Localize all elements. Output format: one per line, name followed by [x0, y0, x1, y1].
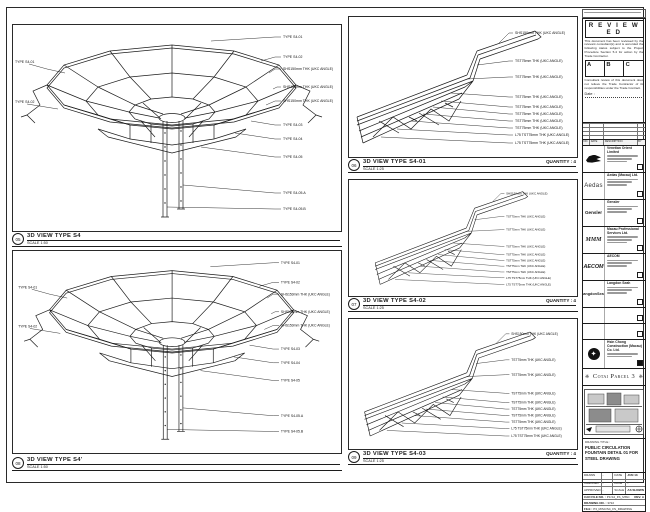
consultant-row-aedas: Aedas Aedas (Macau) Ltd. — [582, 173, 646, 200]
callout-label: TST75mm THK (UKC ANGLE) — [511, 391, 555, 395]
callout-label: SHS150mm THK (UKC ANGLE) — [281, 324, 330, 328]
reviewed-stamp: R E V I E W E D This document has been r… — [582, 18, 646, 123]
aecom-logo: AECOM — [583, 264, 603, 270]
detail-marker-number: 06 — [351, 163, 356, 168]
callout-label: SHS150mm THK (UKC ANGLE) — [281, 292, 330, 296]
structure-wireframe — [375, 192, 527, 285]
consultant-row-gensler: Gensler Gensler — [582, 200, 646, 227]
truss-segment-drawing: SHS150mm THK (UKC ANGLE) TST75mm THK (UK… — [349, 319, 577, 449]
callout-label: TST75mm THK (UKC ANGLE) — [515, 95, 563, 99]
view-title-s4-prime: 08 3D VIEW TYPE S4' SCALE 1:50 — [12, 456, 342, 471]
drawing-title-section: DRAWING TITLE : PUBLIC CIRCULATION FOUNT… — [582, 439, 646, 473]
callout-labels: TYPE S4-01 TYPE S4-02 SHS150mm THK (UKC … — [18, 261, 330, 434]
callout-label: TYPE S4-03 — [283, 123, 303, 127]
detail-marker-number: 07 — [351, 302, 356, 307]
callout-label: TYPE S4-02 — [281, 281, 300, 285]
callout-label: SHS150mm THK (UKC ANGLE) — [515, 31, 565, 35]
consultant-checkbox — [637, 245, 643, 251]
detail-marker: 08 — [12, 457, 24, 469]
signature-table: DRAWN-DATEJUN 13 CHECKED-DATE- APPROVED-… — [582, 473, 646, 495]
umbrella-structure-drawing: TYPE S4-01 TYPE S4-02 SHS150mm THK (UKC … — [13, 251, 341, 453]
title-block: R E V I E W E D This document has been r… — [582, 9, 646, 481]
callout-label: TST75mm THK (UKC ANGLE) — [506, 258, 545, 262]
view-scale-text: SCALE 1:25 — [363, 167, 576, 171]
drawing-title-label: DRAWING TITLE : — [585, 440, 643, 444]
callout-label: TST75mm THK (UKC ANGLE) — [506, 264, 545, 268]
structure-wireframe — [365, 332, 536, 436]
consultant-name: Macau Professional Services Ltd. — [607, 228, 643, 235]
key-plan-map — [584, 387, 644, 437]
consultant-checkbox — [637, 315, 643, 321]
detail-marker: 09 — [348, 451, 360, 463]
callout-labels: TYPE S4-01 TYPE S4-02 SHS150mm THK (UKC … — [15, 35, 333, 211]
quantity-note: QUANTITY : 4 — [546, 298, 576, 304]
callout-label: TYPE S4-05.A — [283, 191, 306, 195]
viewport-3d-view-type-s4-02: SHS150mm THK (UKC ANGLE) TST75mm THK (UK… — [348, 179, 578, 297]
detail-marker-number: 08 — [15, 461, 20, 466]
callout-labels: SHS150mm THK (UKC ANGLE) TST75mm THK (UK… — [511, 332, 561, 438]
contractor-row: ✦ Hsin Chong Construction (Macau) Co. Lt… — [582, 340, 646, 369]
callout-label: TST75mm THK (UKC ANGLE) — [515, 112, 563, 116]
view-title-text: 3D VIEW TYPE S4-03 — [363, 451, 426, 457]
view-title-text: 3D VIEW TYPE S4-02 — [363, 298, 426, 304]
view-title-text: 3D VIEW TYPE S4-01 — [363, 159, 426, 165]
consultant-checkbox — [637, 191, 643, 197]
detail-marker-number: 05 — [15, 237, 20, 242]
callout-label: TYPE S4-05 — [283, 155, 303, 159]
detail-marker-number: 09 — [351, 455, 356, 460]
viewport-3d-view-type-s4: TYPE S4-01 TYPE S4-02 SHS150mm THK (UKC … — [12, 24, 342, 232]
key-plan — [582, 386, 646, 439]
contractor-name: Hsin Chong Construction (Macau) Co. Ltd. — [607, 341, 643, 352]
consultant-row-langdon-seah: LangdonSeah Langdon Seah — [582, 281, 646, 308]
callout-label: TST75mm THK (UKC ANGLE) — [506, 244, 545, 248]
callout-label: TYPE S4-05.B — [283, 207, 306, 211]
consultant-row-mps: MMM Macau Professional Services Ltd. — [582, 227, 646, 254]
callout-label: TYPE S4-04 — [281, 361, 300, 365]
callout-label: TST75mm THK (UKC ANGLE) — [506, 214, 545, 218]
callout-label: TST75mm THK (UKC ANGLE) — [511, 373, 555, 377]
callout-label: TYPE S4-01 — [281, 261, 300, 265]
quantity-note: QUANTITY : 4 — [546, 451, 576, 457]
callout-label: TYPE S4-03 — [281, 347, 300, 351]
drawing-sheet-page: { "views": { "left_top": {"marker": "05"… — [0, 0, 650, 488]
callout-label: TST75mm THK (UKC ANGLE) — [511, 414, 555, 418]
view-title-s4-01: 06 3D VIEW TYPE S4-01QUANTITY : 4 SCALE … — [348, 158, 578, 173]
viewport-3d-view-type-s4-01: SHS150mm THK (UKC ANGLE) TST75mm THK (UK… — [348, 16, 578, 158]
callout-label: L75 TST75mm THK (UKC ANGLE) — [506, 282, 551, 286]
callout-label: TYPE S4-02 — [283, 55, 303, 59]
contractor-emblem: ✦ — [588, 348, 600, 360]
file-path-row: FILE : P3_MISC/S4_FS_DRAWING — [583, 505, 645, 511]
consultant-row-empty — [582, 308, 646, 324]
callout-label: TST75mm THK (UKC ANGLE) — [515, 59, 563, 63]
callout-label: TST75mm THK (UKC ANGLE) — [506, 253, 545, 257]
consultant-name: Gensler — [607, 201, 643, 205]
callout-label: SHS150mm THK (UKC ANGLE) — [281, 310, 330, 314]
detail-marker: 07 — [348, 298, 360, 310]
callout-label: TYPE S4-01 — [283, 35, 303, 39]
viewport-3d-view-type-s4-03: SHS150mm THK (UKC ANGLE) TST75mm THK (UK… — [348, 318, 578, 450]
callout-label: L75 TST75mm THK (UKC ANGLE) — [511, 427, 561, 431]
banner-ornament-right-icon: ❈ — [639, 374, 643, 380]
status-boxes: A B C — [585, 60, 644, 77]
gensler-logo: Gensler — [585, 210, 602, 215]
callout-label: TYPE S4-04 — [283, 137, 303, 141]
status-box-c: C — [624, 61, 642, 76]
callout-labels: SHS150mm THK (UKC ANGLE) TST75mm THK (UK… — [506, 191, 551, 286]
callout-label: SHS150mm THK (UKC ANGLE) — [283, 67, 333, 71]
revision-table-header: NO. DATE DESCRIPTION BY — [583, 139, 645, 145]
callout-label: TYPE S4-01 — [15, 60, 35, 64]
callout-label: L75 TST75mm THK (UKC ANGLE) — [511, 434, 561, 438]
detail-marker: 06 — [348, 159, 360, 171]
signature-row-approved: APPROVED-SCALEAS SHOWN — [583, 486, 645, 493]
fine-print-strip — [582, 9, 646, 18]
structure-wireframe — [357, 31, 541, 143]
callout-labels: SHS150mm THK (UKC ANGLE) TST75mm THK (UK… — [515, 31, 569, 145]
umbrella-structure-drawing: TYPE S4-01 TYPE S4-02 SHS150mm THK (UKC … — [13, 25, 341, 231]
consultant-checkbox — [637, 299, 643, 305]
quantity-note: QUANTITY : 4 — [546, 159, 576, 165]
signature-row-checked: CHECKED-DATE- — [583, 479, 645, 486]
view-title-s4-02: 07 3D VIEW TYPE S4-02QUANTITY : 4 SCALE … — [348, 297, 578, 312]
view-title-s4-03: 09 3D VIEW TYPE S4-03QUANTITY : 4 SCALE … — [348, 450, 578, 465]
revision-table: NO. DATE DESCRIPTION BY — [582, 123, 646, 146]
project-name: Cotai Parcel 3 — [593, 373, 635, 380]
venetian-logo — [583, 146, 604, 172]
consultant-checkbox — [637, 218, 643, 224]
viewport-3d-view-type-s4-prime: TYPE S4-01 TYPE S4-02 SHS150mm THK (UKC … — [12, 250, 342, 454]
callout-label: TST75mm THK (UKC ANGLE) — [515, 126, 563, 130]
contractor-checkbox — [637, 360, 643, 366]
view-scale-text: SCALE 1:50 — [27, 465, 340, 469]
callout-label: L75 TST75mm THK (UKC ANGLE) — [515, 141, 569, 145]
consultant-name: AECOM — [607, 255, 643, 259]
status-box-a: A — [586, 61, 605, 76]
view-scale-text: SCALE 1:50 — [27, 241, 340, 245]
reviewed-stamp-note: Consultant review of this document does … — [585, 79, 644, 91]
callout-label: TYPE S4-02 — [18, 324, 37, 328]
consultant-row-empty — [582, 324, 646, 340]
langdon-seah-logo: LangdonSeah — [583, 292, 604, 296]
callout-label: L75 TST75mm THK (UKC ANGLE) — [506, 276, 551, 280]
drawing-title-text: PUBLIC CIRCULATION FOUNTAIN DETAIL 01 FO… — [585, 445, 643, 461]
callout-label: SHS150mm THK (UKC ANGLE) — [283, 85, 333, 89]
aedas-logo: Aedas — [584, 183, 603, 189]
view-scale-text: SCALE 1:25 — [363, 459, 576, 463]
consultant-name: Langdon Seah — [607, 282, 643, 286]
callout-label: TYPE S4-05 — [281, 379, 300, 383]
truss-segment-drawing: SHS150mm THK (UKC ANGLE) TST75mm THK (UK… — [349, 17, 577, 157]
callout-label: TST75mm THK (UKC ANGLE) — [506, 228, 545, 232]
reviewed-stamp-body: This document has been reviewed by the r… — [585, 40, 644, 59]
callout-label: SHS150mm THK (UKC ANGLE) — [506, 191, 547, 195]
consultant-row-venetian: Venetian Orient Limited — [582, 146, 646, 173]
detail-marker: 05 — [12, 233, 24, 245]
structure-wireframe — [21, 45, 322, 217]
callout-label: TYPE S4-05.B — [281, 430, 304, 434]
callout-label: TST75mm THK (UKC ANGLE) — [515, 75, 563, 79]
reviewed-date-line: Date : — [585, 92, 644, 98]
structure-wireframe — [24, 271, 319, 440]
consultant-row-aecom: AECOM AECOM — [582, 254, 646, 281]
callout-label: TYPE S4-02 — [15, 100, 35, 104]
callout-label: TST75mm THK (UKC ANGLE) — [515, 119, 563, 123]
status-box-b: B — [605, 61, 624, 76]
consultant-name: Aedas (Macau) Ltd. — [607, 174, 643, 178]
view-scale-text: SCALE 1:25 — [363, 306, 576, 310]
project-banner: ❈ Cotai Parcel 3 ❈ — [582, 369, 646, 386]
callout-label: TST75mm THK (UKC ANGLE) — [511, 420, 555, 424]
consultant-checkbox — [637, 272, 643, 278]
truss-segment-drawing: SHS150mm THK (UKC ANGLE) TST75mm THK (UK… — [349, 180, 577, 296]
callout-label: SHS150mm THK (UKC ANGLE) — [511, 332, 558, 336]
callout-label: SHS150mm THK (UKC ANGLE) — [283, 99, 333, 103]
file-info-rows: CAD FILE NO. : P3-S4_FS_MISC REV. A DRAW… — [582, 495, 646, 512]
callout-label: TST75mm THK (UKC ANGLE) — [511, 358, 555, 362]
consultant-checkbox — [637, 331, 643, 337]
view-title-text: 3D VIEW TYPE S4 — [27, 233, 81, 239]
reviewed-stamp-title: R E V I E W E D — [585, 20, 644, 38]
callout-label: TST75mm THK (UKC ANGLE) — [515, 105, 563, 109]
callout-label: TST75mm THK (UKC ANGLE) — [506, 270, 545, 274]
view-title-s4: 05 3D VIEW TYPE S4 SCALE 1:50 — [12, 232, 342, 247]
mps-logo: MMM — [585, 237, 601, 243]
callout-label: TST75mm THK (UKC ANGLE) — [511, 401, 555, 405]
consultant-name: Venetian Orient Limited — [607, 147, 643, 154]
banner-ornament-left-icon: ❈ — [585, 374, 589, 380]
callout-label: L75 TST75mm THK (UKC ANGLE) — [515, 133, 569, 137]
consultant-checkbox — [637, 164, 643, 170]
callout-label: TST75mm THK (UKC ANGLE) — [511, 407, 555, 411]
callout-label: TYPE S4-05.A — [281, 414, 304, 418]
view-title-text: 3D VIEW TYPE S4' — [27, 457, 82, 463]
callout-label: TYPE S4-01 — [18, 285, 37, 289]
